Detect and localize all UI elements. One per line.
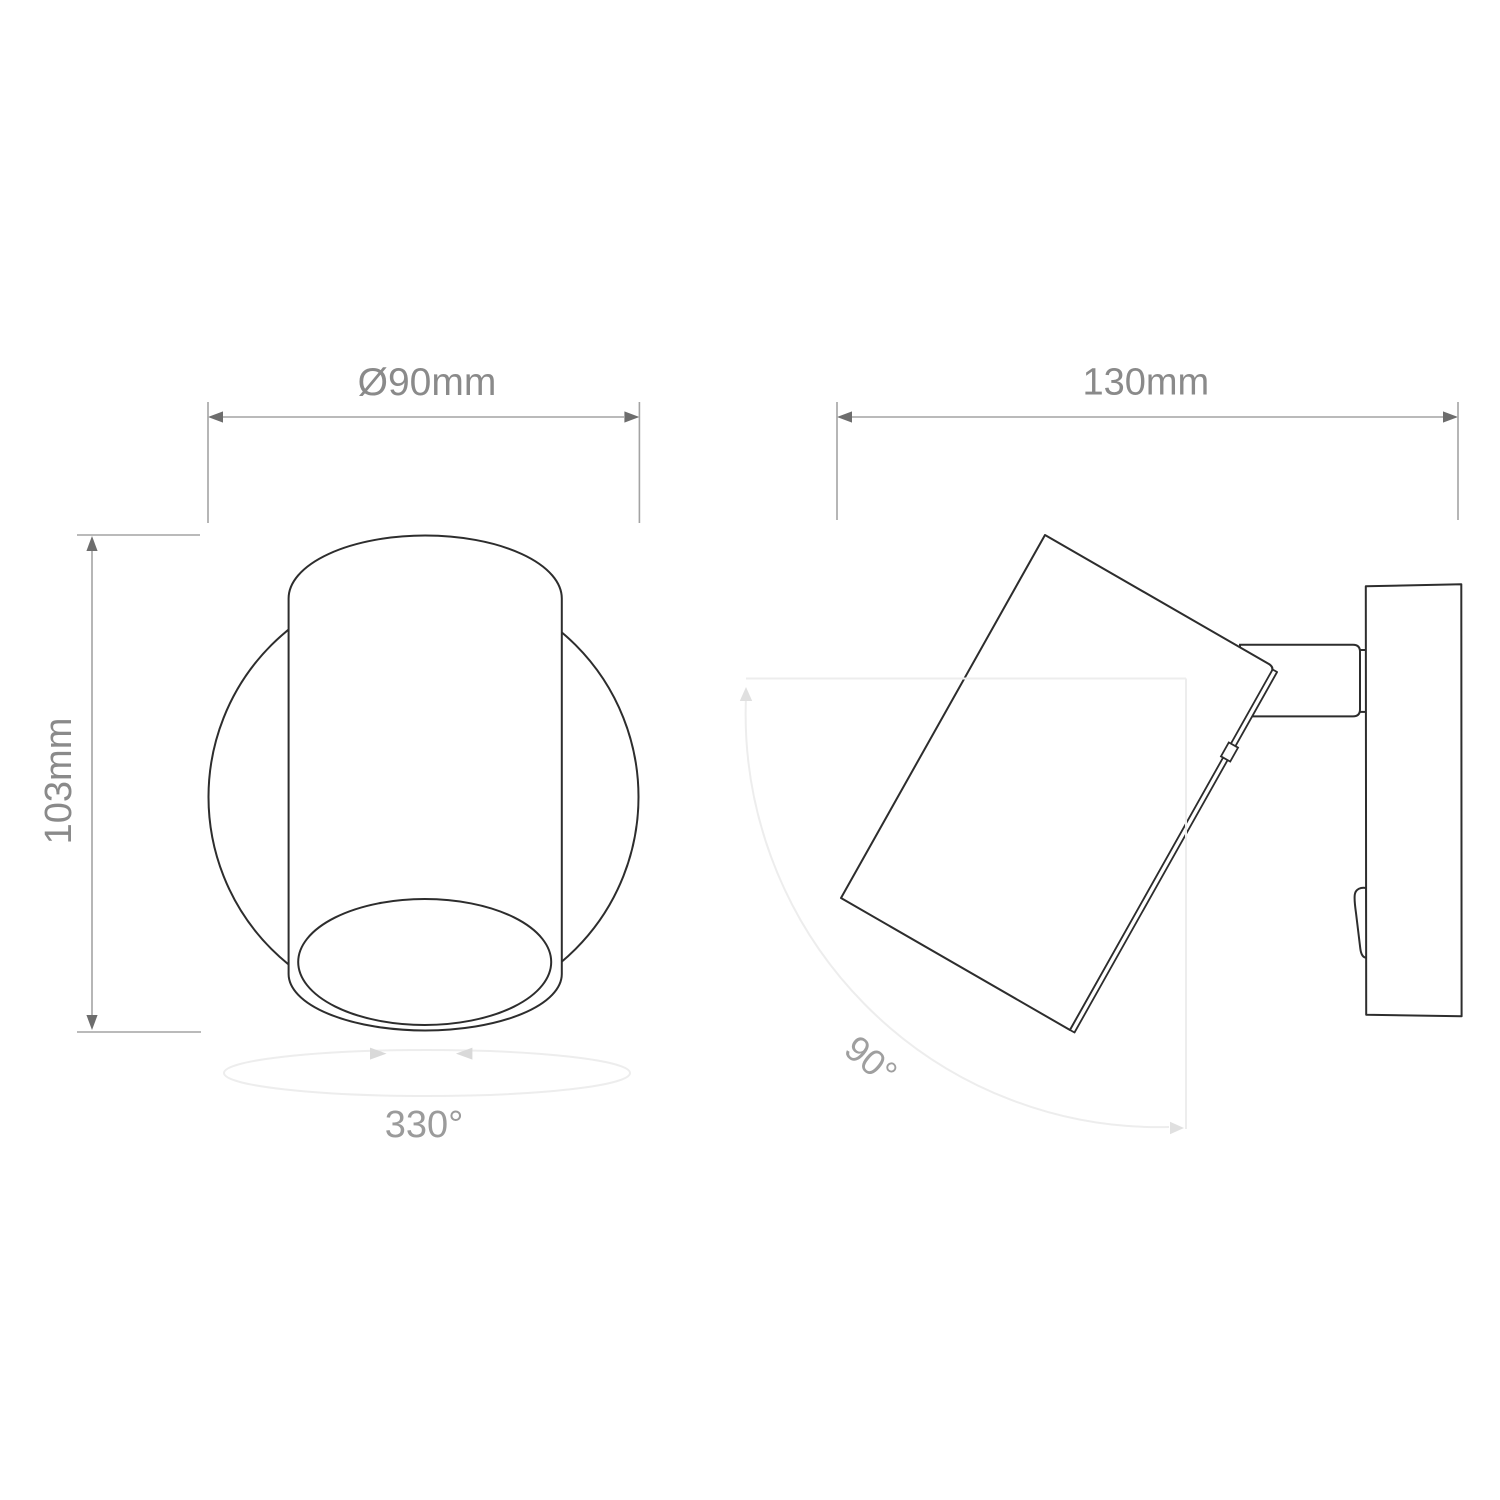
svg-text:330°: 330°	[385, 1104, 464, 1146]
svg-text:Ø90mm: Ø90mm	[358, 361, 497, 404]
svg-text:103mm: 103mm	[38, 718, 80, 845]
svg-text:130mm: 130mm	[1082, 362, 1209, 404]
